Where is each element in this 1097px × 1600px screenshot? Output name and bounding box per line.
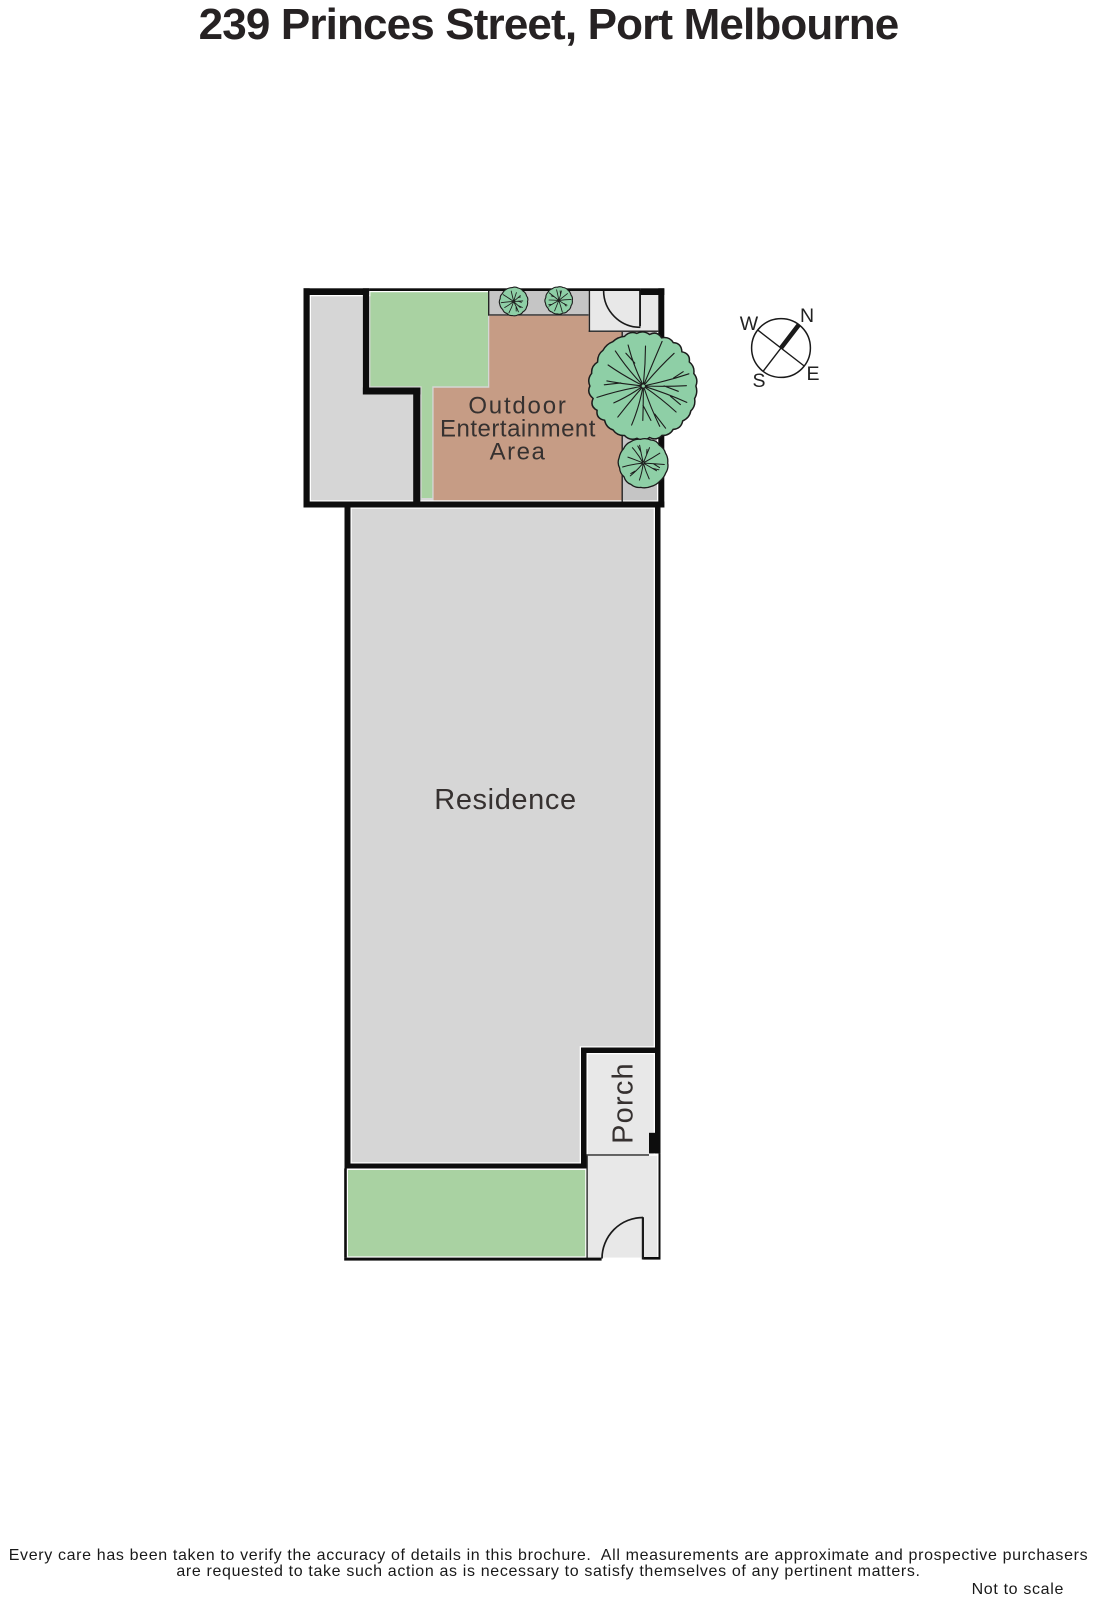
svg-text:E: E <box>806 363 819 385</box>
svg-text:S: S <box>752 370 765 392</box>
svg-text:Porch: Porch <box>608 1062 640 1144</box>
svg-text:N: N <box>800 305 814 327</box>
svg-text:W: W <box>740 313 759 335</box>
svg-text:Residence: Residence <box>434 784 576 816</box>
svg-text:Area: Area <box>490 439 547 466</box>
